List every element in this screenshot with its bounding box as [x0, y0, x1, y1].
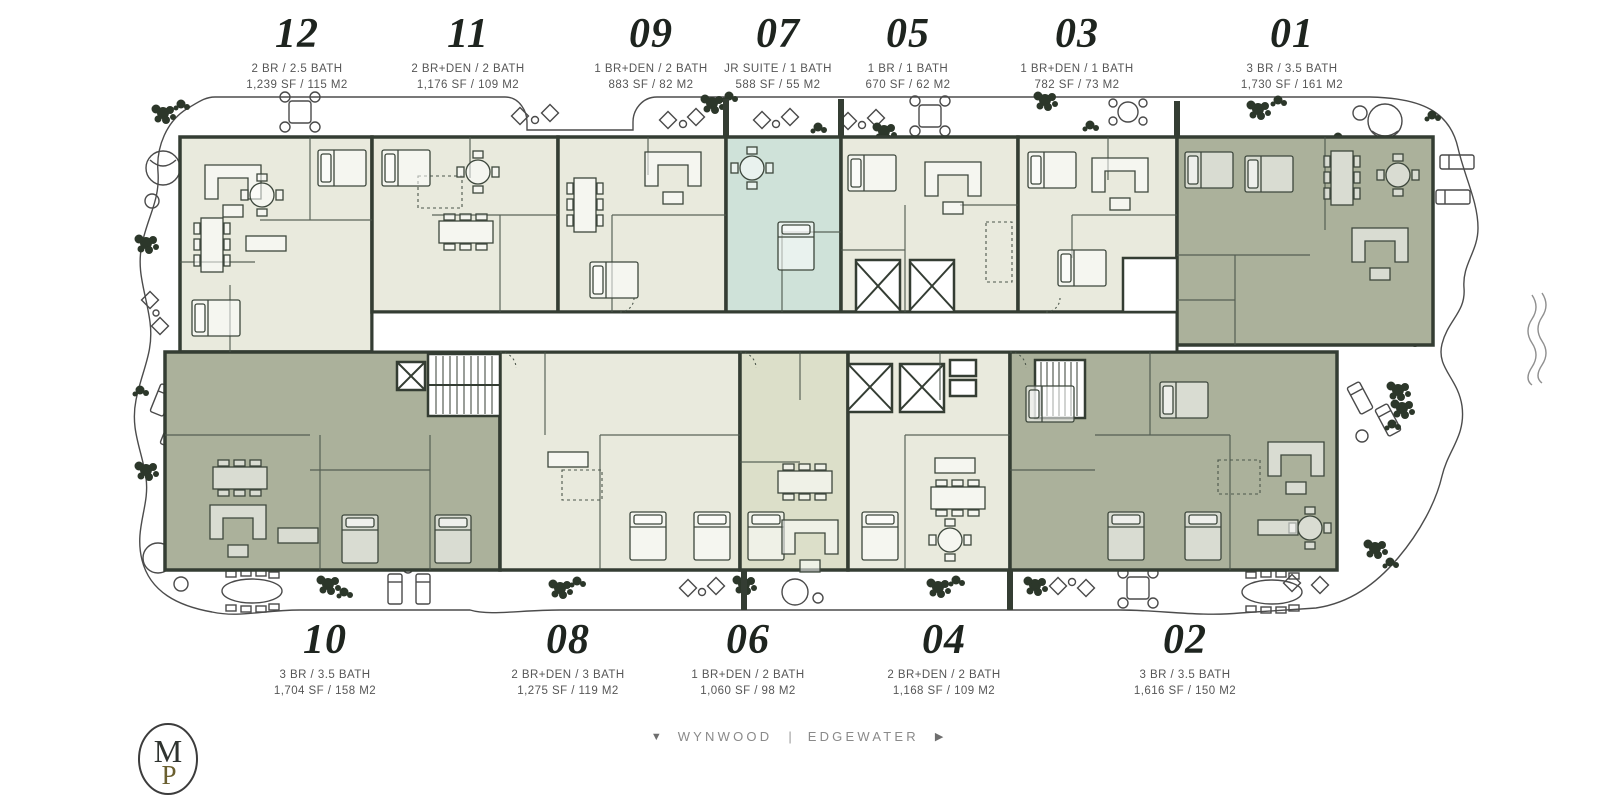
- nav-area-edgewater[interactable]: EDGEWATER: [808, 729, 919, 744]
- view-switcher: ▼ WYNWOOD | EDGEWATER ▶: [651, 729, 944, 744]
- corridor: [372, 312, 1177, 352]
- mp-monogram-icon: M P: [135, 720, 201, 798]
- nav-area-wynwood[interactable]: WYNWOOD: [678, 729, 773, 744]
- unit-number: 10: [210, 618, 440, 662]
- service-room: [1123, 258, 1177, 312]
- unit-size: 1,704 SF / 158 M2: [210, 683, 440, 699]
- unit-number: 04: [829, 618, 1059, 662]
- unit-size: 1,730 SF / 161 M2: [1177, 77, 1407, 93]
- unit-label-10: 10 3 BR / 3.5 BATH 1,704 SF / 158 M2: [210, 618, 440, 699]
- unit-size: 782 SF / 73 M2: [962, 77, 1192, 93]
- unit-size: 1,168 SF / 109 M2: [829, 683, 1059, 699]
- unit-type: 3 BR / 3.5 BATH: [1070, 667, 1300, 683]
- unit-number: 02: [1070, 618, 1300, 662]
- nav-down-arrow-icon[interactable]: ▼: [651, 731, 662, 743]
- unit-type: 3 BR / 3.5 BATH: [210, 667, 440, 683]
- unit-type: 3 BR / 3.5 BATH: [1177, 61, 1407, 77]
- unit-number: 03: [962, 12, 1192, 56]
- logo-letter-p: P: [161, 760, 176, 790]
- unit-type: 2 BR+DEN / 2 BATH: [829, 667, 1059, 683]
- unit-label-01: 01 3 BR / 3.5 BATH 1,730 SF / 161 M2: [1177, 12, 1407, 93]
- unit-type: 1 BR+DEN / 1 BATH: [962, 61, 1192, 77]
- water-waves-icon: [1528, 295, 1536, 385]
- unit-number: 01: [1177, 12, 1407, 56]
- nav-separator: |: [788, 729, 791, 744]
- unit-label-04: 04 2 BR+DEN / 2 BATH 1,168 SF / 109 M2: [829, 618, 1059, 699]
- unit-label-02: 02 3 BR / 3.5 BATH 1,616 SF / 150 M2: [1070, 618, 1300, 699]
- unit-size: 1,616 SF / 150 M2: [1070, 683, 1300, 699]
- nav-next-arrow-icon[interactable]: ▶: [935, 730, 943, 743]
- unit-label-03: 03 1 BR+DEN / 1 BATH 782 SF / 73 M2: [962, 12, 1192, 93]
- mp-logo[interactable]: M P: [135, 720, 201, 803]
- floorplan-page: 12 2 BR / 2.5 BATH 1,239 SF / 115 M2 11 …: [0, 0, 1600, 808]
